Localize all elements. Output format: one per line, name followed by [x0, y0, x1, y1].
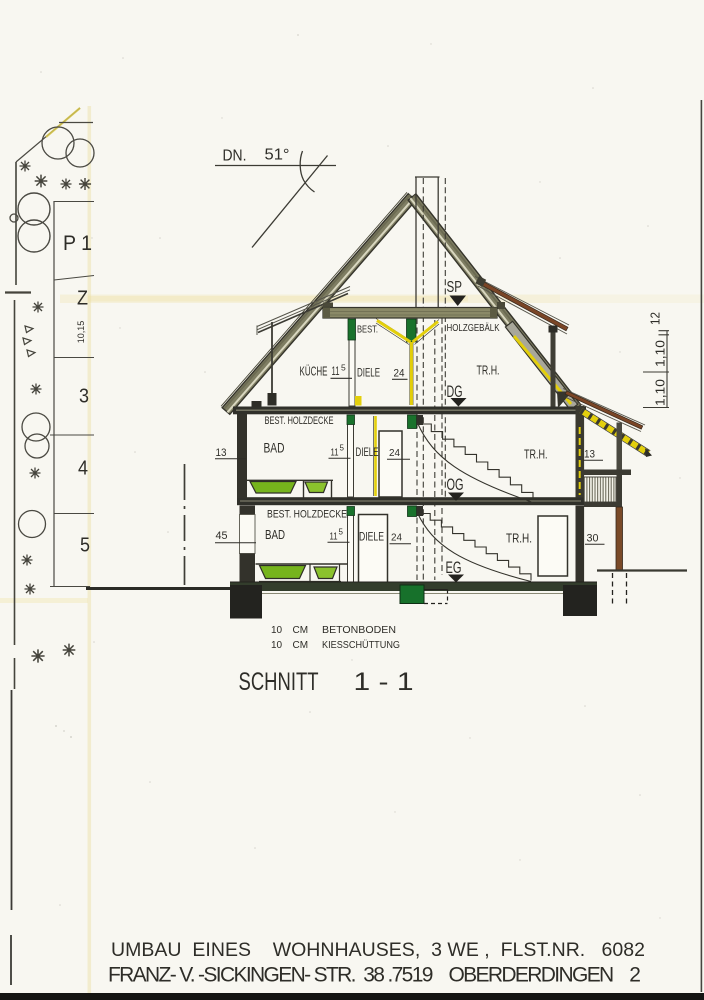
svg-text:FRANZ- V. -SICKINGEN- STR. 38: FRANZ- V. -SICKINGEN- STR. 38 .7519 OBER… — [108, 964, 641, 987]
svg-text:BAD: BAD — [265, 528, 285, 542]
svg-text:TR.H.: TR.H. — [506, 531, 532, 546]
svg-text:4: 4 — [78, 458, 88, 480]
svg-text:DIELE: DIELE — [359, 530, 384, 544]
svg-text:HOLZGEBÄLK: HOLZGEBÄLK — [447, 322, 500, 334]
svg-text:TR.H.: TR.H. — [477, 364, 500, 378]
svg-text:1,10: 1,10 — [654, 340, 668, 367]
svg-text:3: 3 — [79, 386, 89, 408]
svg-text:DN.: DN. — [223, 148, 247, 165]
svg-text:DIELE: DIELE — [356, 445, 379, 459]
svg-text:11: 11 — [332, 366, 340, 378]
svg-text:11: 11 — [330, 531, 338, 543]
svg-text:UMBAU EINES WOHNHAUSES, 3: UMBAU EINES WOHNHAUSES, 3 WE , FLST.NR. … — [111, 939, 645, 961]
svg-text:24: 24 — [389, 447, 400, 459]
svg-text:EG: EG — [446, 559, 462, 577]
svg-text:5: 5 — [339, 528, 344, 537]
svg-text:24: 24 — [394, 368, 405, 380]
svg-text:DIELE: DIELE — [357, 366, 380, 380]
svg-text:TR.H.: TR.H. — [524, 447, 548, 462]
svg-text:OG: OG — [447, 476, 464, 494]
svg-text:13: 13 — [584, 449, 595, 461]
svg-text:30: 30 — [587, 533, 599, 545]
svg-text:24: 24 — [391, 532, 402, 544]
svg-text:11: 11 — [331, 447, 339, 459]
svg-text:P 1: P 1 — [63, 232, 92, 255]
svg-text:51°: 51° — [265, 147, 290, 164]
svg-text:BEST.: BEST. — [357, 324, 378, 336]
svg-text:5: 5 — [340, 444, 345, 453]
svg-text:SP: SP — [447, 279, 463, 296]
svg-text:BEST. HOLZDECKE: BEST. HOLZDECKE — [267, 509, 347, 521]
svg-text:5: 5 — [341, 363, 346, 373]
svg-text:1,10: 1,10 — [654, 379, 668, 406]
svg-text:SCHNITT: SCHNITT — [239, 668, 319, 696]
svg-text:45: 45 — [216, 530, 228, 542]
svg-text:KÜCHE: KÜCHE — [300, 365, 328, 379]
svg-text:1 - 1: 1 - 1 — [354, 668, 414, 696]
svg-text:5: 5 — [80, 535, 90, 557]
svg-text:BEST. HOLZDECKE: BEST. HOLZDECKE — [265, 415, 334, 427]
svg-text:10,15: 10,15 — [76, 321, 86, 344]
svg-text:13: 13 — [216, 447, 227, 459]
svg-text:BAD: BAD — [264, 441, 285, 456]
svg-text:12: 12 — [649, 312, 663, 325]
svg-text:Z: Z — [77, 288, 88, 310]
